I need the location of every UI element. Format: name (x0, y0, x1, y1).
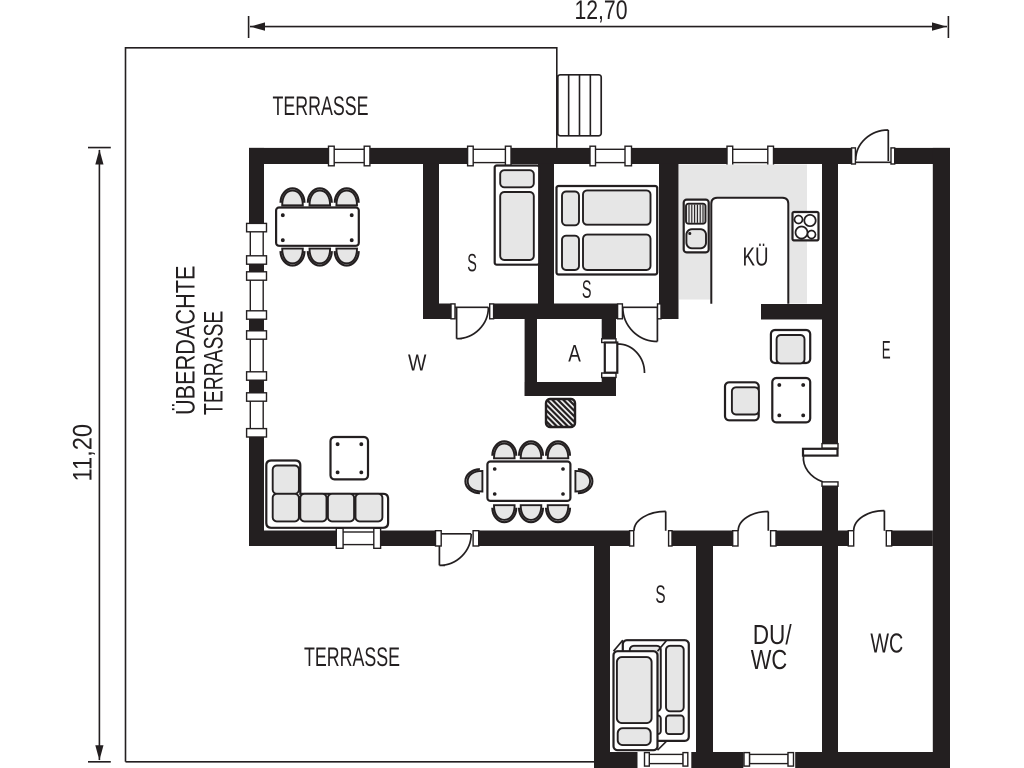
svg-text:S: S (582, 276, 592, 304)
svg-text:WC: WC (870, 628, 903, 659)
svg-text:W: W (408, 350, 427, 376)
svg-text:TERRASSE: TERRASSE (273, 91, 369, 121)
svg-text:S: S (655, 581, 665, 609)
svg-text:WC: WC (751, 644, 788, 675)
svg-text:TERRASSE: TERRASSE (304, 642, 400, 672)
svg-text:12,70: 12,70 (575, 0, 628, 25)
svg-text:A: A (568, 340, 581, 367)
svg-text:ÜBERDACHTE: ÜBERDACHTE (170, 266, 200, 416)
svg-text:KÜ: KÜ (743, 241, 769, 271)
svg-text:E: E (882, 336, 891, 364)
svg-text:11,20: 11,20 (68, 424, 98, 482)
svg-text:TERRASSE: TERRASSE (198, 311, 228, 415)
svg-text:S: S (467, 250, 477, 278)
